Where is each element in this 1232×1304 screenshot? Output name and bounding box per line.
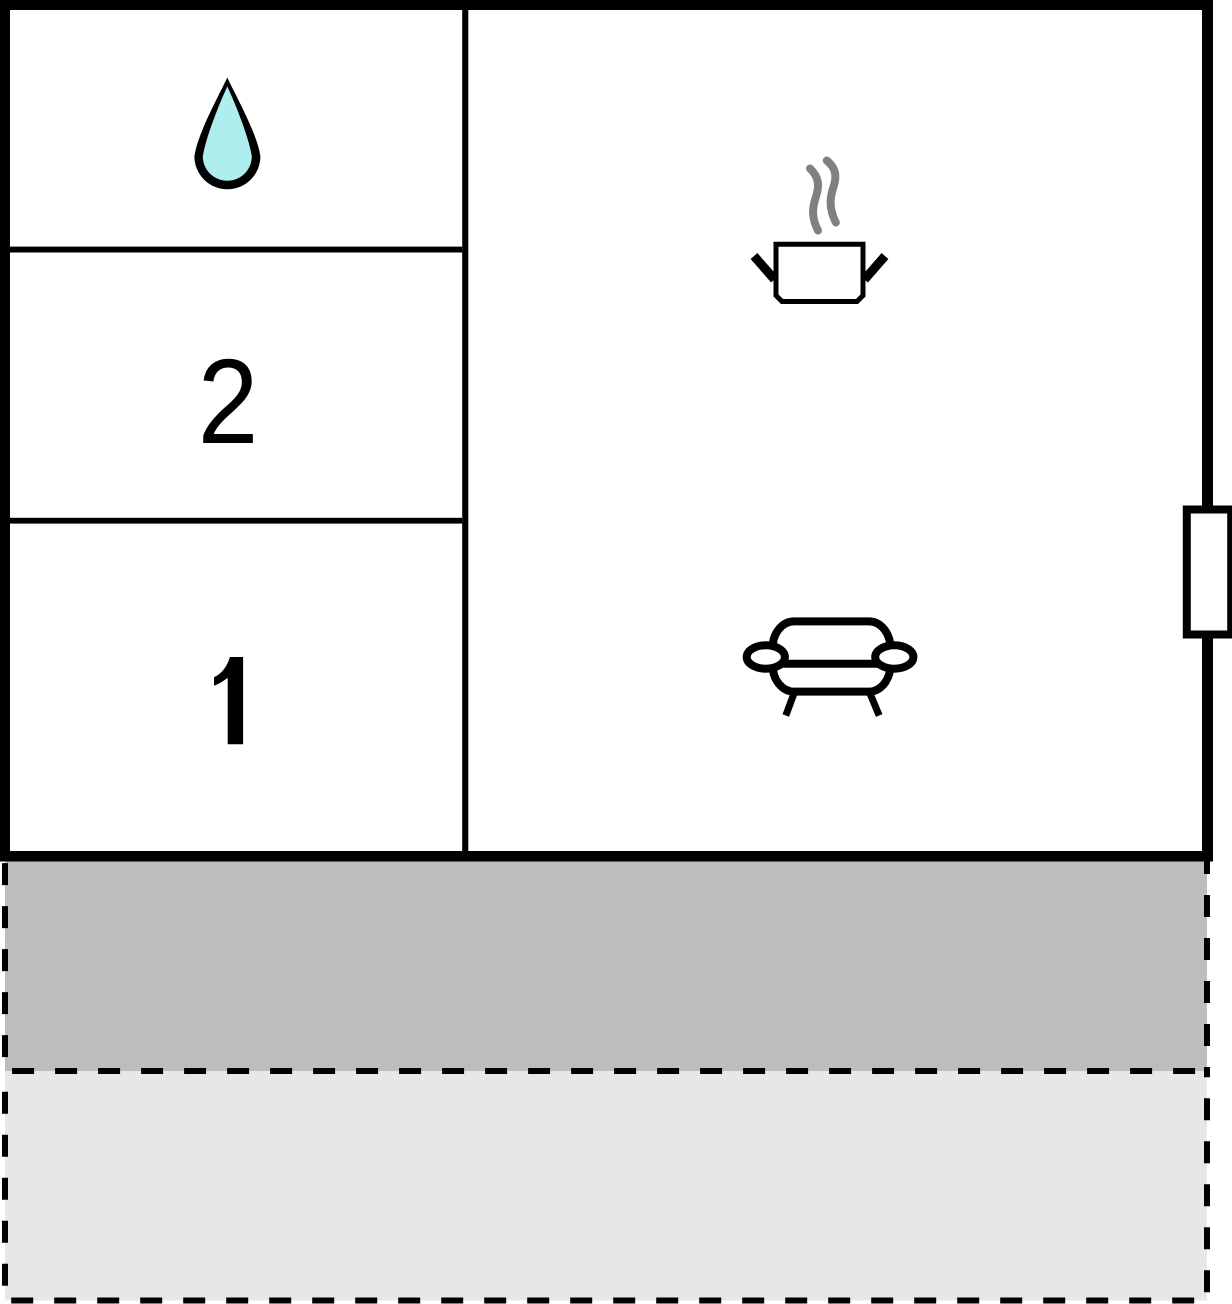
svg-text:2: 2 [198,335,259,470]
